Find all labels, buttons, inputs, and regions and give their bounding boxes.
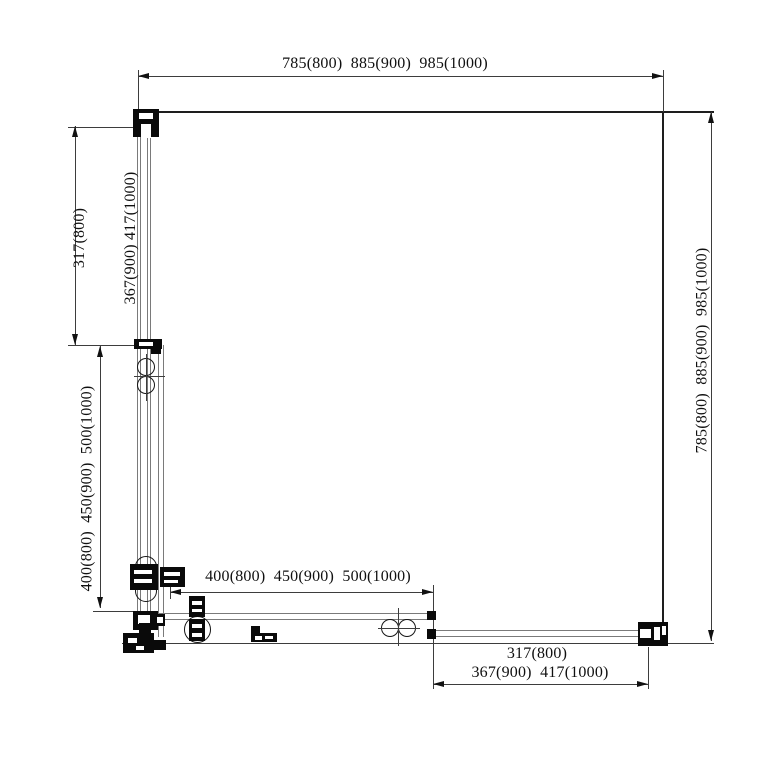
top-dimension-line xyxy=(138,76,663,77)
top-wall-line xyxy=(155,111,714,113)
bottom-right-dimension-label-line2: 367(900) 417(1000) xyxy=(440,664,640,681)
clamp-slot xyxy=(134,579,152,583)
bracket-cutout xyxy=(640,629,651,638)
bracket-cutout xyxy=(139,113,153,119)
left-lower-dimension-label: 400(800) 450(900) 500(1000) xyxy=(79,374,96,604)
bottom-right-dimension-label-line1: 317(800) xyxy=(477,645,597,662)
floor-bracket-icon xyxy=(153,640,166,650)
arrow-right-icon xyxy=(652,73,663,79)
extension-line xyxy=(663,70,664,112)
door-hanger-bracket-icon xyxy=(151,348,161,354)
right-dimension-label: 785(800) 885(900) 985(1000) xyxy=(694,221,711,481)
clamp-slot xyxy=(134,570,152,574)
clamp-slot xyxy=(192,624,202,628)
floor-bracket-icon xyxy=(123,633,154,653)
left-upper-dimension-line1: 317(800) xyxy=(71,152,88,324)
clamp-slot xyxy=(164,572,180,576)
bottom-middle-dimension-label: 400(800) 450(900) 500(1000) xyxy=(188,568,428,585)
technical-drawing-canvas: 785(800) 885(900) 985(1000) 785(800) 885… xyxy=(0,0,769,769)
bottom-right-dimension-line xyxy=(433,684,648,685)
bottom-sliding-door-glass-line xyxy=(140,613,433,614)
top-dimension-label: 785(800) 885(900) 985(1000) xyxy=(265,55,505,72)
roller-axle-line xyxy=(134,376,165,377)
clamp-slot xyxy=(192,609,202,612)
arrow-left-icon xyxy=(170,589,181,595)
bottom-fixed-panel-glass-line xyxy=(433,630,648,631)
bottom-fixed-panel-glass-line xyxy=(433,636,648,637)
clamp-slot xyxy=(255,636,262,640)
bracket-cutout xyxy=(128,638,137,643)
bracket-cutout xyxy=(157,617,163,623)
bracket-cutout xyxy=(139,342,153,346)
bottom-rail-line xyxy=(122,643,714,644)
arrow-up-icon xyxy=(708,112,714,123)
arrow-right-icon xyxy=(637,681,648,687)
left-lower-dimension-line xyxy=(100,346,101,608)
glass-clamp-icon xyxy=(189,619,205,641)
right-dimension-line xyxy=(711,112,712,641)
panel-end-clip-icon xyxy=(427,611,436,620)
roller-axle-line xyxy=(378,628,420,629)
arrow-right-icon xyxy=(422,589,433,595)
bracket-cutout xyxy=(662,626,666,635)
right-wall-line xyxy=(662,112,664,623)
extension-line xyxy=(648,647,649,689)
left-upper-dimension-line2: 367(900) 417(1000) xyxy=(122,152,139,324)
bracket-cutout xyxy=(654,627,660,640)
arrow-left-icon xyxy=(138,73,149,79)
left-sliding-door-glass-line xyxy=(163,345,164,637)
arrow-down-icon xyxy=(708,630,714,641)
panel-end-clip-icon xyxy=(427,629,436,639)
bottom-middle-dimension-line xyxy=(170,592,433,593)
clamp-slot xyxy=(192,633,202,637)
clamp-slot xyxy=(265,636,273,639)
arrow-down-icon xyxy=(72,334,78,345)
glass-clamp-icon xyxy=(160,567,185,587)
left-upper-dimension-label: 317(800) 367(900) 417(1000) xyxy=(37,152,71,324)
clamp-slot xyxy=(164,580,178,583)
roller-axle-line xyxy=(146,354,147,401)
arrow-down-icon xyxy=(97,597,103,608)
clamp-slot xyxy=(192,601,202,605)
bracket-cutout xyxy=(141,124,151,138)
glass-clamp-icon xyxy=(189,596,205,617)
arrow-up-icon xyxy=(72,126,78,137)
arrow-left-icon xyxy=(433,681,444,687)
roller-axle-line xyxy=(398,608,399,646)
arrow-up-icon xyxy=(97,346,103,357)
left-sliding-door-glass-line xyxy=(158,345,159,637)
glass-clamp-icon xyxy=(130,564,158,590)
bracket-cutout xyxy=(136,646,144,650)
